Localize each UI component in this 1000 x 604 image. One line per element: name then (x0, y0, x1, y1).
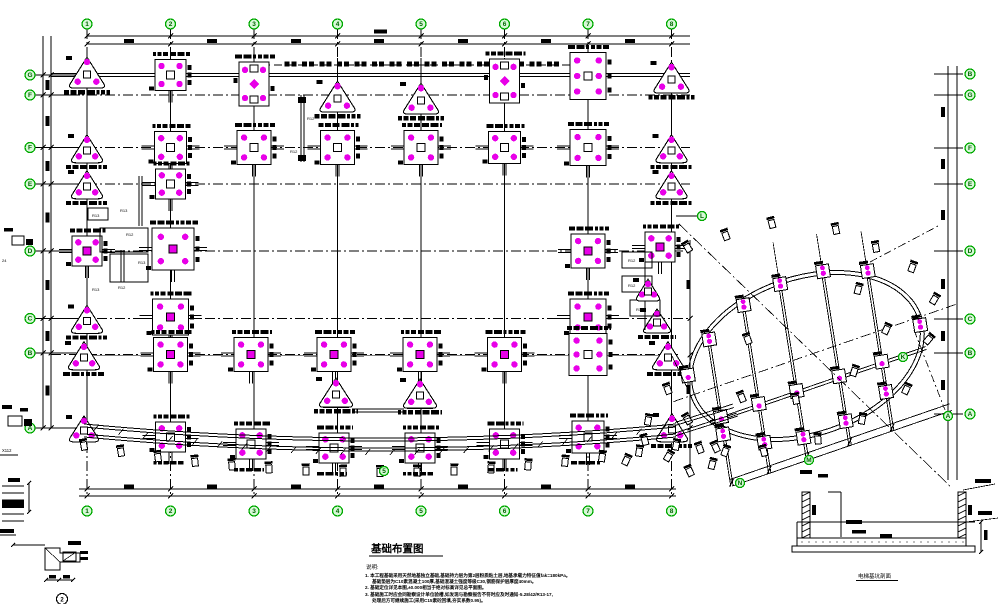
svg-text:R13: R13 (138, 260, 146, 265)
svg-text:2: 2 (169, 508, 173, 515)
svg-text:4: 4 (336, 21, 340, 28)
svg-text:基础垫层为C10素混凝土100厚,基础混凝土强度等级C30,: 基础垫层为C10素混凝土100厚,基础混凝土强度等级C30,钢筋保护层厚度40m… (371, 578, 536, 585)
svg-text:1. 本工程基础采用天然地基独立基础,基础持力层为第2层粉质: 1. 本工程基础采用天然地基独立基础,基础持力层为第2层粉质粘土层,地基承载力特… (365, 572, 570, 579)
svg-text:3: 3 (252, 508, 256, 515)
svg-text:2: 2 (169, 21, 173, 28)
svg-text:2. 基础定位详见本图,±0.000相当于绝对标高详见总平面: 2. 基础定位详见本图,±0.000相当于绝对标高详见总平面图。 (365, 584, 486, 591)
svg-text:R12: R12 (126, 232, 134, 237)
svg-text:X112: X112 (2, 448, 12, 453)
svg-text:基础布置图: 基础布置图 (370, 542, 424, 555)
svg-text:5: 5 (382, 468, 386, 475)
svg-text:R12: R12 (290, 149, 298, 154)
svg-text:6: 6 (503, 508, 507, 515)
svg-text:A: A (28, 425, 33, 432)
svg-text:G: G (967, 92, 972, 99)
svg-text:A: A (946, 413, 951, 420)
svg-text:1: 1 (85, 21, 89, 28)
svg-text:7: 7 (586, 21, 590, 28)
svg-text:3: 3 (252, 21, 256, 28)
svg-text:D: D (28, 248, 33, 255)
svg-text:6: 6 (503, 21, 507, 28)
svg-text:4: 4 (336, 508, 340, 515)
svg-text:F: F (28, 92, 32, 99)
svg-text:C: C (28, 316, 33, 323)
svg-text:K: K (901, 354, 906, 361)
svg-text:7: 7 (586, 508, 590, 515)
svg-text:L: L (700, 213, 704, 220)
svg-text:处理后方可继续施工(采用C15素砼回填,夯实系数0.95)。: 处理后方可继续施工(采用C15素砼回填,夯实系数0.95)。 (371, 597, 486, 604)
svg-text:8: 8 (670, 21, 674, 28)
svg-text:1: 1 (85, 508, 89, 515)
svg-text:R13: R13 (92, 213, 100, 218)
svg-text:3. 基础施工时应会同勘察设计单位验槽,如发现与勘察报告不符: 3. 基础施工时应会同勘察设计单位验槽,如发现与勘察报告不符时应及时通知-5.2… (365, 591, 553, 598)
svg-text:5: 5 (419, 508, 423, 515)
svg-text:M: M (806, 457, 811, 464)
svg-text:E: E (968, 181, 973, 188)
svg-text:R13: R13 (92, 287, 100, 292)
svg-text:B: B (968, 71, 973, 78)
svg-text:N: N (738, 480, 743, 487)
svg-text:R12: R12 (628, 283, 636, 288)
svg-text:D: D (968, 248, 973, 255)
svg-text:B: B (968, 350, 973, 357)
svg-text:R12: R12 (118, 285, 126, 290)
svg-text:R12: R12 (307, 116, 315, 121)
svg-text:电梯基坑剖面: 电梯基坑剖面 (858, 572, 892, 580)
svg-text:A: A (968, 411, 973, 418)
svg-text:R13: R13 (120, 208, 128, 213)
svg-text:E: E (28, 181, 33, 188)
svg-text:8: 8 (670, 508, 674, 515)
svg-text:B: B (28, 350, 33, 357)
svg-text:F: F (968, 145, 972, 152)
svg-text:说明:: 说明: (366, 563, 379, 571)
svg-text:G: G (27, 72, 32, 79)
svg-text:R12: R12 (628, 258, 636, 263)
svg-text:5: 5 (419, 21, 423, 28)
svg-text:R12: R12 (636, 307, 644, 312)
svg-text:C: C (968, 316, 973, 323)
svg-text:24: 24 (2, 258, 7, 263)
svg-text:F: F (28, 145, 32, 152)
